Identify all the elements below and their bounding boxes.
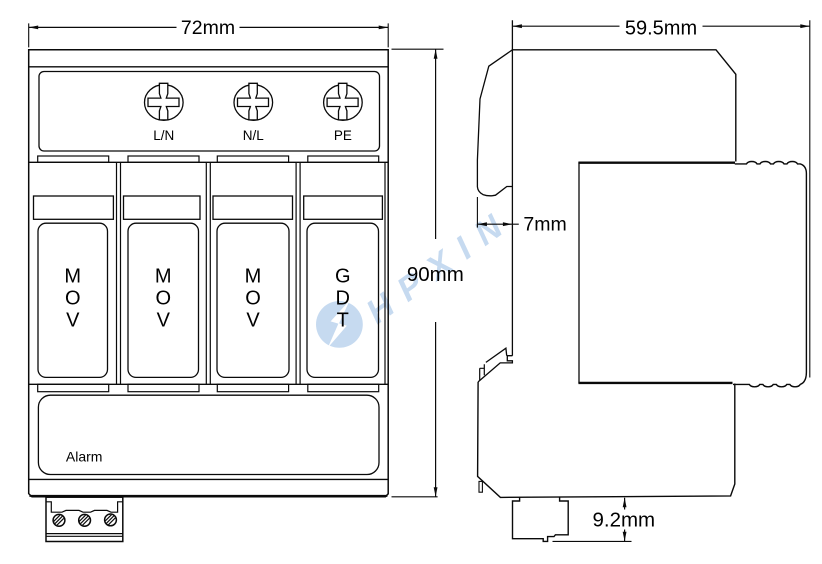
- svg-text:PE: PE: [334, 128, 352, 143]
- svg-text:O: O: [65, 288, 81, 310]
- svg-text:V: V: [157, 310, 171, 332]
- svg-text:V: V: [66, 310, 80, 332]
- svg-text:M: M: [64, 266, 81, 288]
- svg-text:D: D: [336, 288, 350, 310]
- svg-text:7mm: 7mm: [523, 214, 566, 236]
- svg-text:L/N: L/N: [153, 128, 174, 143]
- svg-text:90mm: 90mm: [407, 263, 464, 286]
- svg-text:M: M: [245, 266, 262, 288]
- svg-text:O: O: [245, 288, 261, 310]
- svg-text:72mm: 72mm: [181, 17, 235, 39]
- svg-text:T: T: [337, 310, 349, 332]
- svg-text:Alarm: Alarm: [66, 449, 103, 465]
- svg-text:M: M: [155, 266, 172, 288]
- svg-text:9.2mm: 9.2mm: [592, 508, 655, 531]
- svg-text:O: O: [155, 288, 171, 310]
- svg-text:59.5mm: 59.5mm: [625, 18, 697, 40]
- svg-text:V: V: [246, 310, 260, 332]
- svg-text:N/L: N/L: [243, 128, 265, 143]
- svg-text:G: G: [335, 266, 351, 288]
